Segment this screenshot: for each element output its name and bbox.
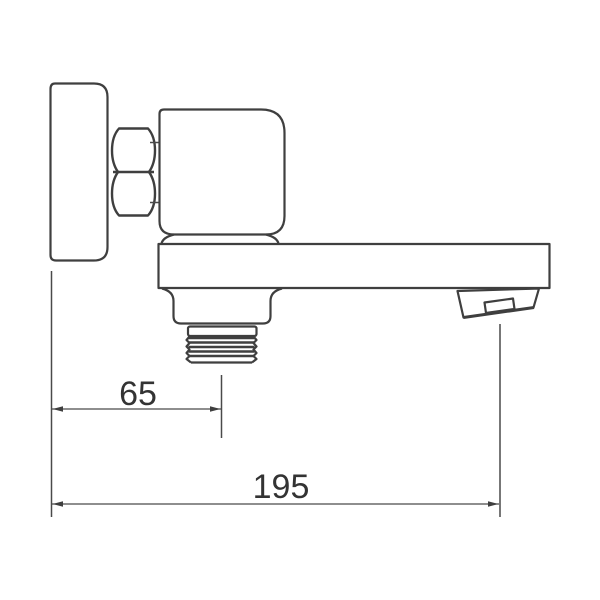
- dimension-195-label: 195: [253, 468, 310, 506]
- nozzle-bottom-edge: [464, 308, 535, 318]
- spout-body-outline: [159, 244, 550, 288]
- spout-body: [159, 244, 550, 288]
- dimension-65-arrow-left: [53, 406, 64, 411]
- body-spout-fillet-left: [162, 235, 175, 244]
- underside-shoulder-outline: [162, 289, 282, 324]
- spout-nozzle: [458, 289, 540, 318]
- dimension-195: 195: [52, 468, 499, 507]
- valve-body: [160, 110, 285, 244]
- dimension-65-label: 65: [119, 375, 157, 413]
- thread-serration-left: [187, 337, 192, 363]
- connector-flange: [188, 327, 257, 337]
- dimension-65: 65: [52, 375, 221, 413]
- dimension-65-arrow-right: [210, 406, 221, 411]
- wall-plate-outline: [51, 84, 108, 261]
- valve-body-outline: [160, 110, 285, 235]
- drawing-svg: 65 195: [0, 0, 600, 600]
- dimension-195-arrow-left: [53, 501, 64, 506]
- body-spout-fillet-right: [266, 235, 279, 244]
- threaded-connector: [187, 337, 257, 363]
- hex-nut: [112, 129, 159, 216]
- underside-shoulder: [162, 289, 282, 337]
- wall-plate: [51, 84, 108, 261]
- thread-serration-right: [252, 337, 257, 363]
- faucet-technical-drawing: 65 195: [0, 0, 600, 600]
- dimension-195-arrow-right: [488, 501, 499, 506]
